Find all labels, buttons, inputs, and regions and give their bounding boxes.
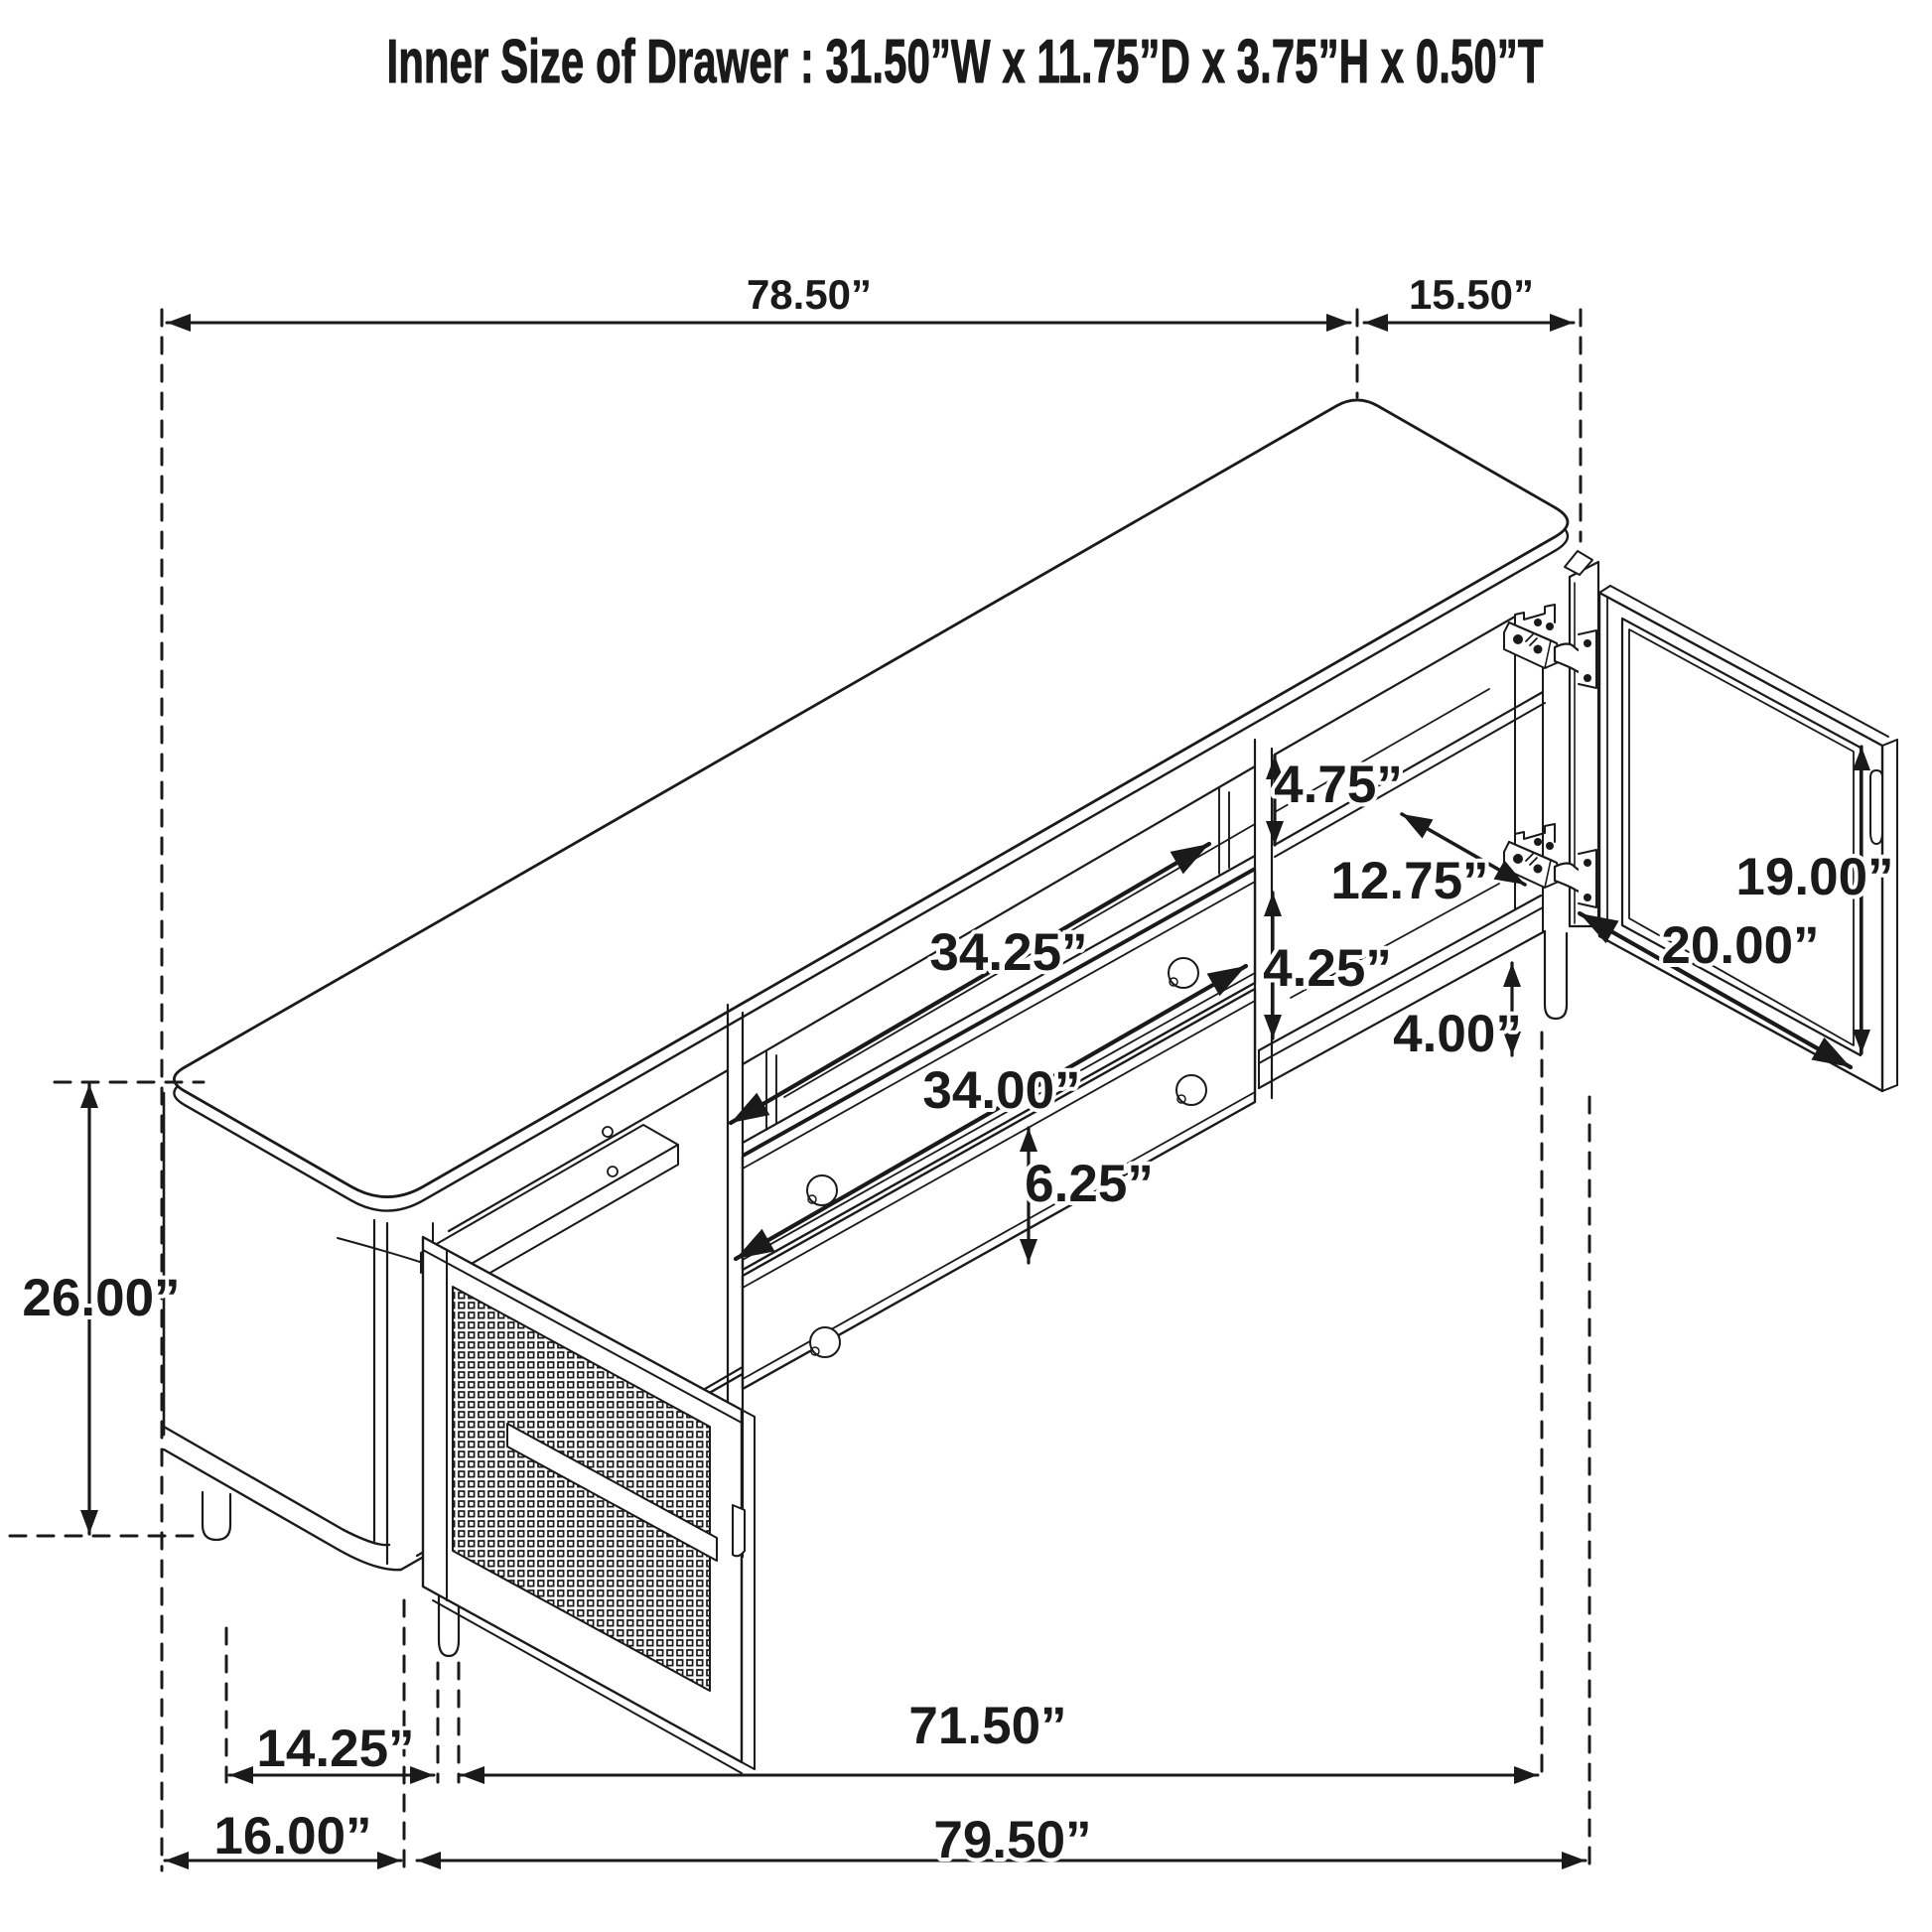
svg-text:34.25”: 34.25” (929, 923, 1087, 982)
svg-text:78.50”: 78.50” (747, 271, 872, 318)
svg-text:71.50”: 71.50” (908, 1697, 1066, 1755)
svg-text:16.00”: 16.00” (213, 1807, 371, 1865)
svg-text:12.75”: 12.75” (1330, 852, 1488, 910)
svg-text:4.00”: 4.00” (1393, 1005, 1522, 1063)
svg-text:19.00”: 19.00” (1735, 848, 1893, 906)
svg-text:Inner Size of Drawer : 31.50”W: Inner Size of Drawer : 31.50”W x 11.75”D… (387, 28, 1544, 96)
svg-text:34.00”: 34.00” (922, 1061, 1080, 1120)
svg-text:6.25”: 6.25” (1025, 1155, 1154, 1213)
svg-text:20.00”: 20.00” (1661, 916, 1819, 975)
svg-text:15.50”: 15.50” (1409, 271, 1534, 318)
svg-text:14.25”: 14.25” (256, 1720, 414, 1778)
svg-text:4.25”: 4.25” (1263, 939, 1392, 998)
svg-text:26.00”: 26.00” (22, 1269, 180, 1327)
svg-text:79.50”: 79.50” (933, 1811, 1091, 1869)
svg-text:4.75”: 4.75” (1274, 756, 1403, 814)
